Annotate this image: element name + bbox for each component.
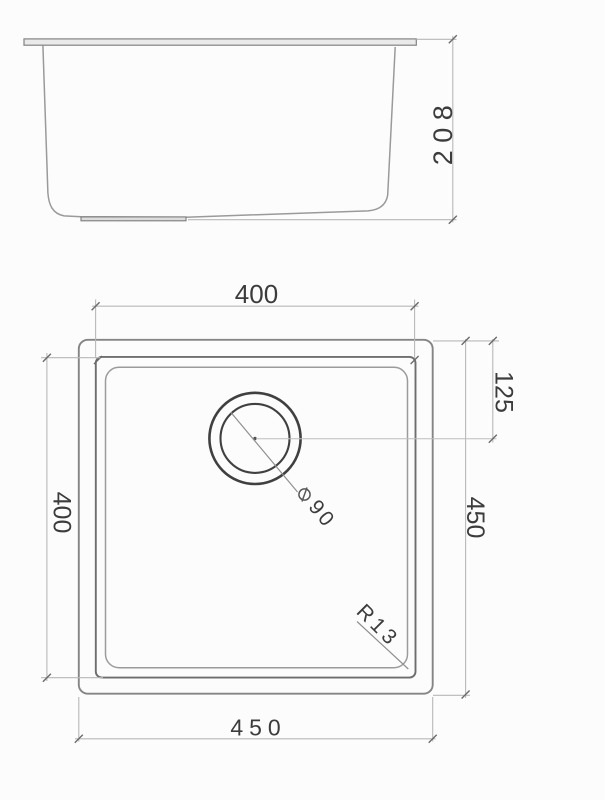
svg-text:450: 450 — [230, 715, 286, 741]
svg-text:450: 450 — [461, 497, 489, 539]
svg-text:400: 400 — [48, 492, 76, 534]
svg-text:400: 400 — [235, 279, 278, 309]
svg-text:125: 125 — [490, 371, 518, 413]
svg-text:208: 208 — [428, 98, 458, 166]
